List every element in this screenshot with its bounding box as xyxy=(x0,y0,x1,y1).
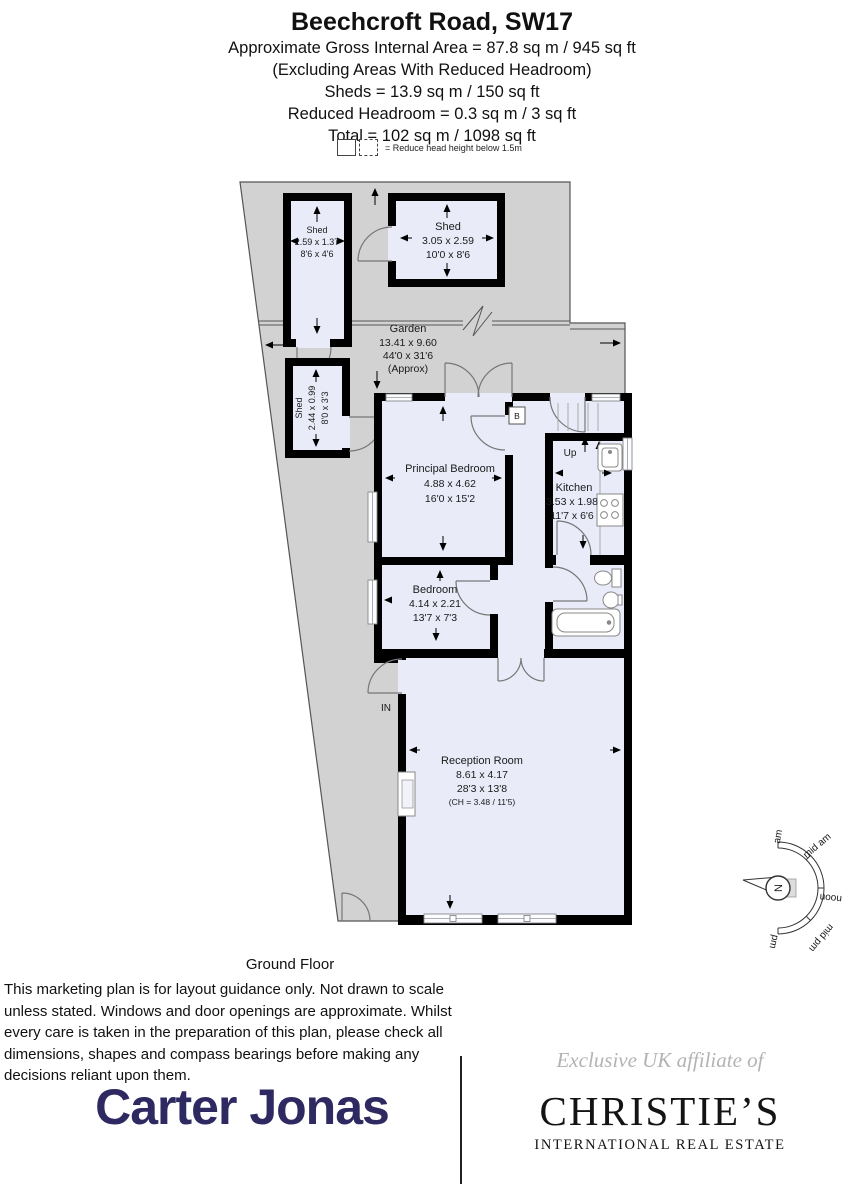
floorplan-page: Shed 2.59 x 1.37 8'6 x 4'6 Shed 3.05 x 2… xyxy=(0,0,864,1200)
affiliate-name: CHRISTIE’S xyxy=(480,1087,840,1135)
compass-north-label: N xyxy=(773,884,785,892)
garden-imperial: 44'0 x 31'6 xyxy=(383,350,433,362)
compass-mid-am-label: mid am xyxy=(801,831,833,861)
toilet-icon xyxy=(595,569,622,587)
affiliate-logo-block: Exclusive UK affiliate of CHRISTIE’S INT… xyxy=(480,1048,840,1154)
reduced-headroom-legend: = Reduce head height below 1.5m xyxy=(337,139,522,156)
boiler-label: B xyxy=(514,411,520,421)
shed-small-metric: 2.59 x 1.37 xyxy=(295,237,340,247)
boiler-box: B xyxy=(509,407,525,424)
floor-label: Ground Floor xyxy=(0,956,580,973)
kitchen-imperial: 11'7 x 6'6 xyxy=(550,510,594,522)
shed-small-imperial: 8'6 x 4'6 xyxy=(301,249,334,259)
disclaimer-text: This marketing plan is for layout guidan… xyxy=(4,979,470,1087)
garden-note: (Approx) xyxy=(388,363,428,375)
shed-small-name: Shed xyxy=(306,225,327,235)
shed-large-name: Shed xyxy=(435,221,461,233)
shed-side-name: Shed xyxy=(294,397,304,418)
shed-side-metric: 2.44 x 0.99 xyxy=(307,386,317,431)
principal-bedroom-name: Principal Bedroom xyxy=(405,463,495,475)
legend-box-dashed-icon xyxy=(359,139,378,156)
reception-imperial: 28'3 x 13'8 xyxy=(457,783,507,795)
fireplace-icon xyxy=(398,772,415,816)
kitchen-name: Kitchen xyxy=(556,482,593,494)
title-block: Beechcroft Road, SW17 Approximate Gross … xyxy=(0,8,864,147)
reception-name: Reception Room xyxy=(441,755,523,767)
bedroom-name: Bedroom xyxy=(413,584,458,596)
kitchen-metric: 3.53 x 1.98 xyxy=(546,496,598,508)
bedroom-imperial: 13'7 x 7'3 xyxy=(413,612,457,624)
reception-floor xyxy=(406,658,624,915)
compass-rose: N am mid am noon mid pm pm xyxy=(743,829,842,954)
stairs-up-label: Up xyxy=(564,448,577,459)
garden-metric: 13.41 x 9.60 xyxy=(379,337,437,349)
garden-name: Garden xyxy=(390,323,427,335)
compass-noon-label: noon xyxy=(819,891,842,904)
excluding-areas-line: (Excluding Areas With Reduced Headroom) xyxy=(0,59,864,81)
principal-bedroom-metric: 4.88 x 4.62 xyxy=(424,478,476,490)
shed-large-imperial: 10'0 x 8'6 xyxy=(426,249,470,261)
gross-internal-area-line: Approximate Gross Internal Area = 87.8 s… xyxy=(0,37,864,59)
hob-icon xyxy=(597,494,623,526)
affiliate-tagline: Exclusive UK affiliate of xyxy=(480,1048,840,1073)
legend-box-icon xyxy=(337,139,356,156)
sheds-area-line: Sheds = 13.9 sq m / 150 sq ft xyxy=(0,81,864,103)
agent-logo: Carter Jonas xyxy=(52,1078,432,1136)
logo-divider xyxy=(460,1056,462,1184)
entrance-in-label: IN xyxy=(381,703,391,714)
bedroom-metric: 4.14 x 2.21 xyxy=(409,598,461,610)
shed-side-imperial: 8'0 x 3'3 xyxy=(320,392,330,425)
page-title: Beechcroft Road, SW17 xyxy=(0,8,864,37)
bathtub-icon xyxy=(552,609,620,636)
sink-icon xyxy=(598,444,622,471)
lower-hall-floor xyxy=(498,565,545,649)
affiliate-subtitle: INTERNATIONAL REAL ESTATE xyxy=(480,1137,840,1154)
principal-bedroom-imperial: 16'0 x 15'2 xyxy=(425,493,475,505)
compass-mid-pm-label: mid pm xyxy=(806,922,836,954)
reception-ceiling-height: (CH = 3.48 / 11'5) xyxy=(449,797,516,807)
shed-large-metric: 3.05 x 2.59 xyxy=(422,235,474,247)
reception-metric: 8.61 x 4.17 xyxy=(456,769,508,781)
legend-text: = Reduce head height below 1.5m xyxy=(385,143,522,153)
reduced-headroom-line: Reduced Headroom = 0.3 sq m / 3 sq ft xyxy=(0,103,864,125)
compass-pm-label: pm xyxy=(767,934,781,950)
